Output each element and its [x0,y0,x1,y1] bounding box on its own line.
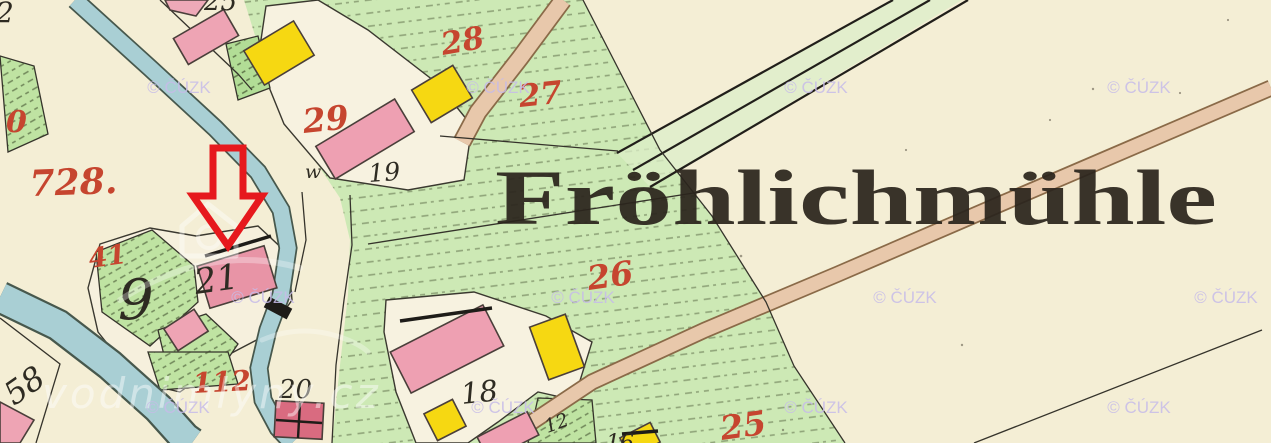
cuzk-watermark: © ČÚZK [784,78,848,97]
parcel-number-25: 25 [717,403,769,443]
parcel-number-29: 29 [300,97,351,141]
historic-cadastral-map-viewport[interactable]: 728. 0 41 112 29 28 27 26 25 2 25 9 21 w… [0,0,1271,443]
cuzk-watermark: © ČÚZK [1194,288,1258,307]
cuzk-watermark: © ČÚZK [873,288,937,307]
cuzk-watermark: © ČÚZK [466,78,530,97]
cuzk-watermark: © ČÚZK [146,398,210,417]
parcel-number-28: 28 [437,20,487,63]
number-2-partial: 2 [0,0,14,29]
cuzk-watermark: © ČÚZK [784,398,848,417]
letter-w: w [305,161,321,183]
parcel-number-728: 728. [29,160,118,205]
cuzk-watermark: © ČÚZK [231,288,295,307]
place-name-label: Fröhlichmühle [495,154,1217,241]
cuzk-watermark: © ČÚZK [471,398,535,417]
number-25-top-partial: 25 [203,0,237,17]
cuzk-watermark: © ČÚZK [551,288,615,307]
number-19: 19 [367,157,401,188]
site-watermark-text: vodnimlyny.cz [42,369,381,418]
cuzk-watermark: © ČÚZK [1107,398,1171,417]
number-16-partial: 16 [606,431,634,443]
parcel-number-0-partial: 0 [6,105,27,140]
cuzk-watermark: © ČÚZK [1107,78,1171,97]
cadastral-map-canvas[interactable]: 728. 0 41 112 29 28 27 26 25 2 25 9 21 w… [0,0,1271,443]
cuzk-watermark: © ČÚZK [147,78,211,97]
